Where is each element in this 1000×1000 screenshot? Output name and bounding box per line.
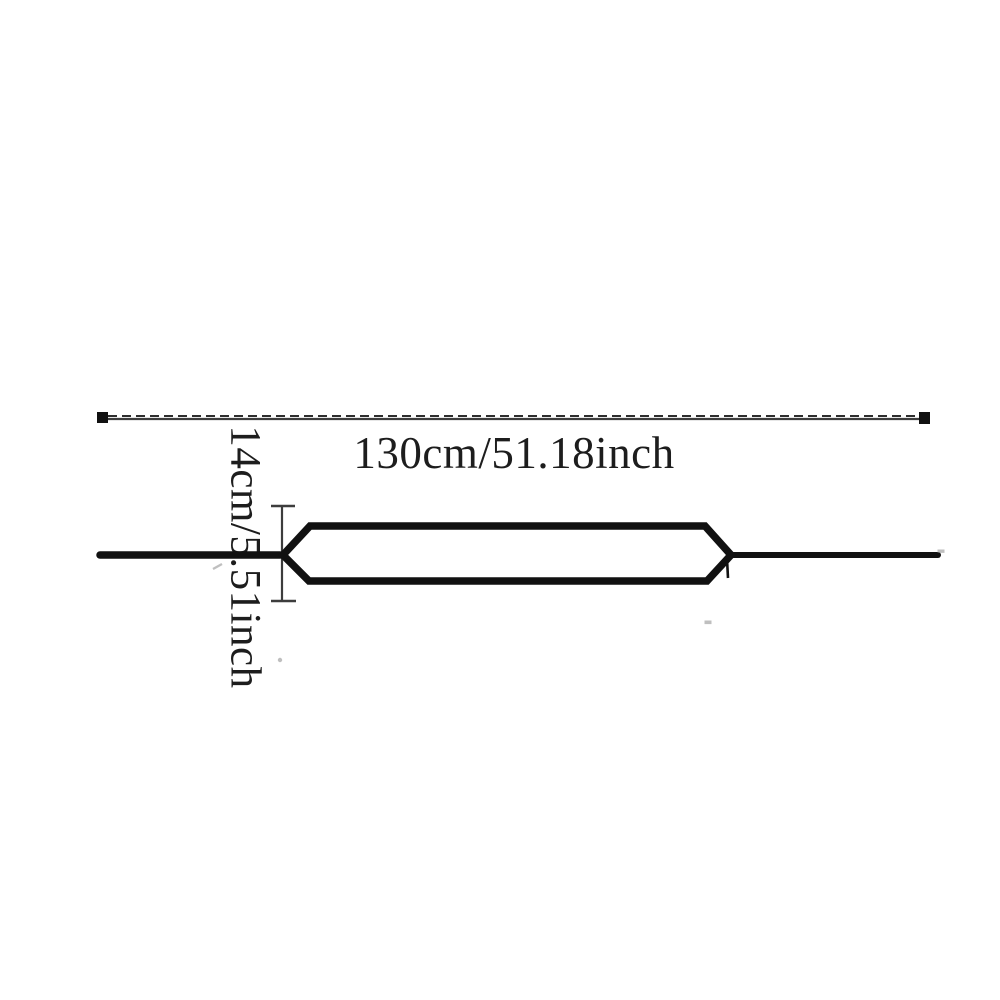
diagram-svg: 130cm/51.18inch 14cm/5.51inch	[0, 0, 1000, 1000]
length-endpoint-right-square-icon	[919, 412, 930, 424]
artifact-dash-right-end	[938, 550, 944, 552]
scarf-body-hexagon	[283, 526, 731, 581]
length-dimension-label: 130cm/51.18inch	[353, 428, 674, 478]
length-endpoint-left-square-icon	[97, 412, 108, 423]
right-vertex-tick	[727, 559, 728, 578]
artifact-dot	[278, 658, 281, 661]
artifact-dash-left	[213, 564, 222, 569]
product-dimension-diagram: 130cm/51.18inch 14cm/5.51inch	[0, 0, 1000, 1000]
artifact-dash-bottom	[705, 621, 711, 624]
